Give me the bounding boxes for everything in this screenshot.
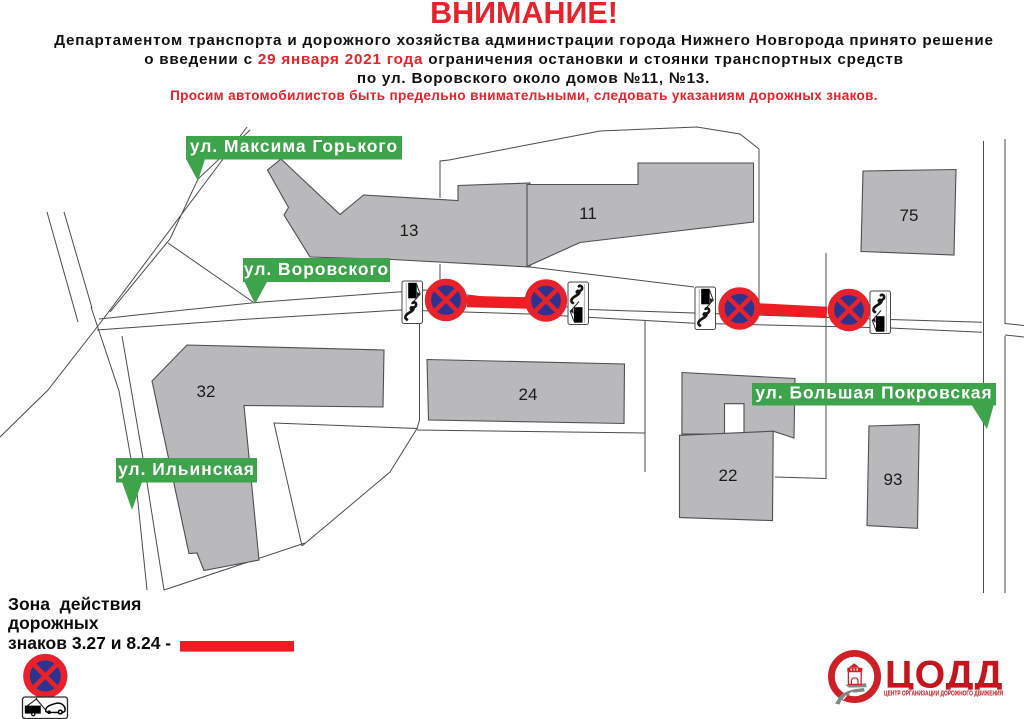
svg-text:32: 32: [197, 382, 216, 401]
svg-text:93: 93: [884, 470, 903, 489]
svg-text:11: 11: [579, 204, 597, 223]
svg-text:ул. Воровского: ул. Воровского: [244, 259, 389, 279]
svg-text:22: 22: [719, 466, 738, 485]
svg-text:ул. Максима Горького: ул. Максима Горького: [190, 136, 398, 156]
svg-text:ЦЕНТР ОРГАНИЗАЦИИ ДОРОЖНОГО ДВ: ЦЕНТР ОРГАНИЗАЦИИ ДОРОЖНОГО ДВИЖЕНИЯ: [884, 688, 1003, 697]
svg-text:ул. Ильинская: ул. Ильинская: [118, 459, 255, 479]
svg-text:75: 75: [900, 206, 919, 225]
svg-text:24: 24: [519, 385, 538, 404]
svg-text:ул. Большая Покровская: ул. Большая Покровская: [755, 383, 992, 403]
svg-text:13: 13: [400, 221, 419, 240]
